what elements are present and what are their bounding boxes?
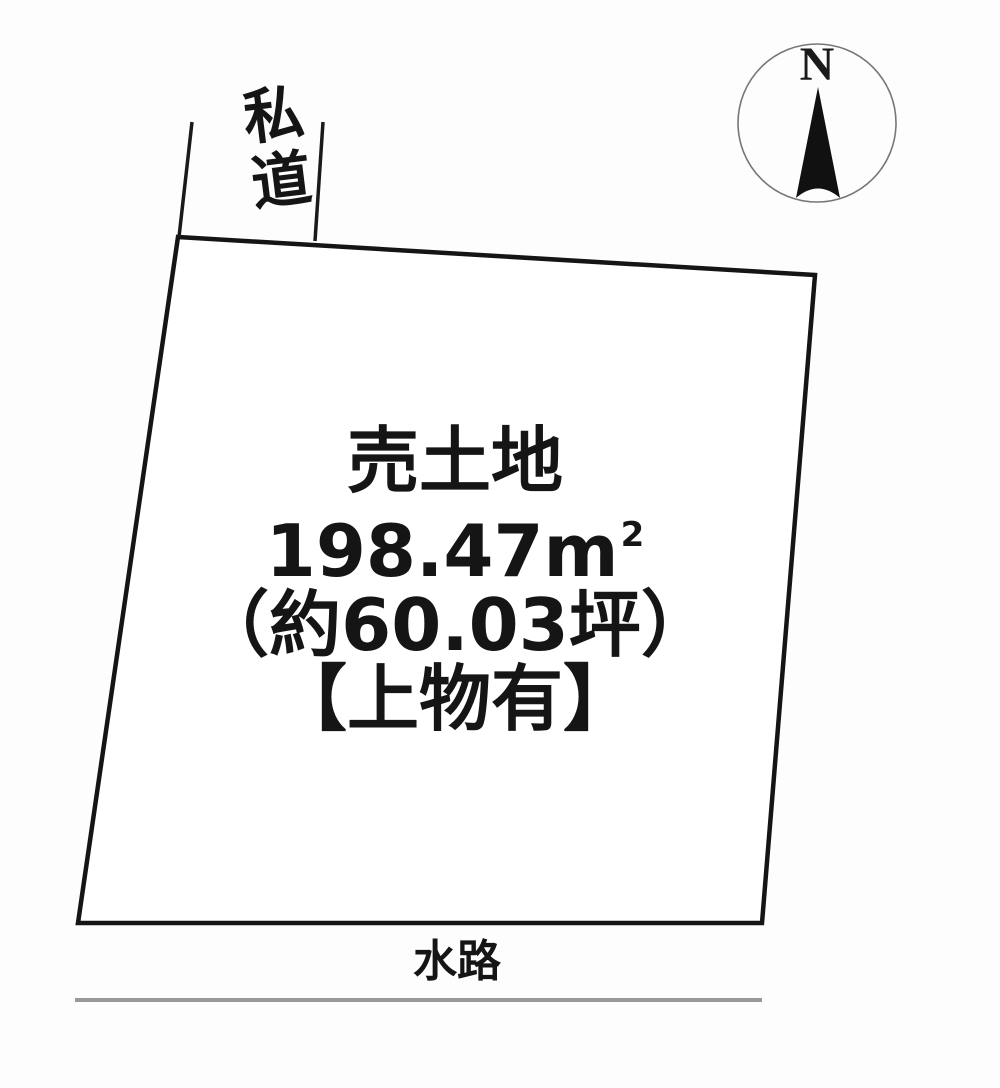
waterway-label: 水路	[397, 936, 517, 988]
parcel-area-value: 198.47m	[266, 509, 619, 593]
compass-north-label: N	[792, 40, 842, 90]
private-road-label: 私道	[221, 79, 323, 221]
compass-needle-icon	[796, 87, 840, 198]
parcel-area-tsubo: （約60.03坪）	[135, 588, 775, 662]
parcel-area-m2: 198.47m2	[135, 498, 775, 588]
parcel-info: 売土地 198.47m2 （約60.03坪） 【上物有】	[135, 424, 775, 736]
parcel-area-superscript: 2	[621, 498, 645, 572]
private-road-left-line	[179, 122, 192, 237]
land-plot-diagram: 私道 売土地 198.47m2 （約60.03坪） 【上物有】 N 水路	[0, 0, 1000, 1088]
parcel-title: 売土地	[135, 424, 775, 498]
parcel-structure-note: 【上物有】	[135, 662, 775, 736]
